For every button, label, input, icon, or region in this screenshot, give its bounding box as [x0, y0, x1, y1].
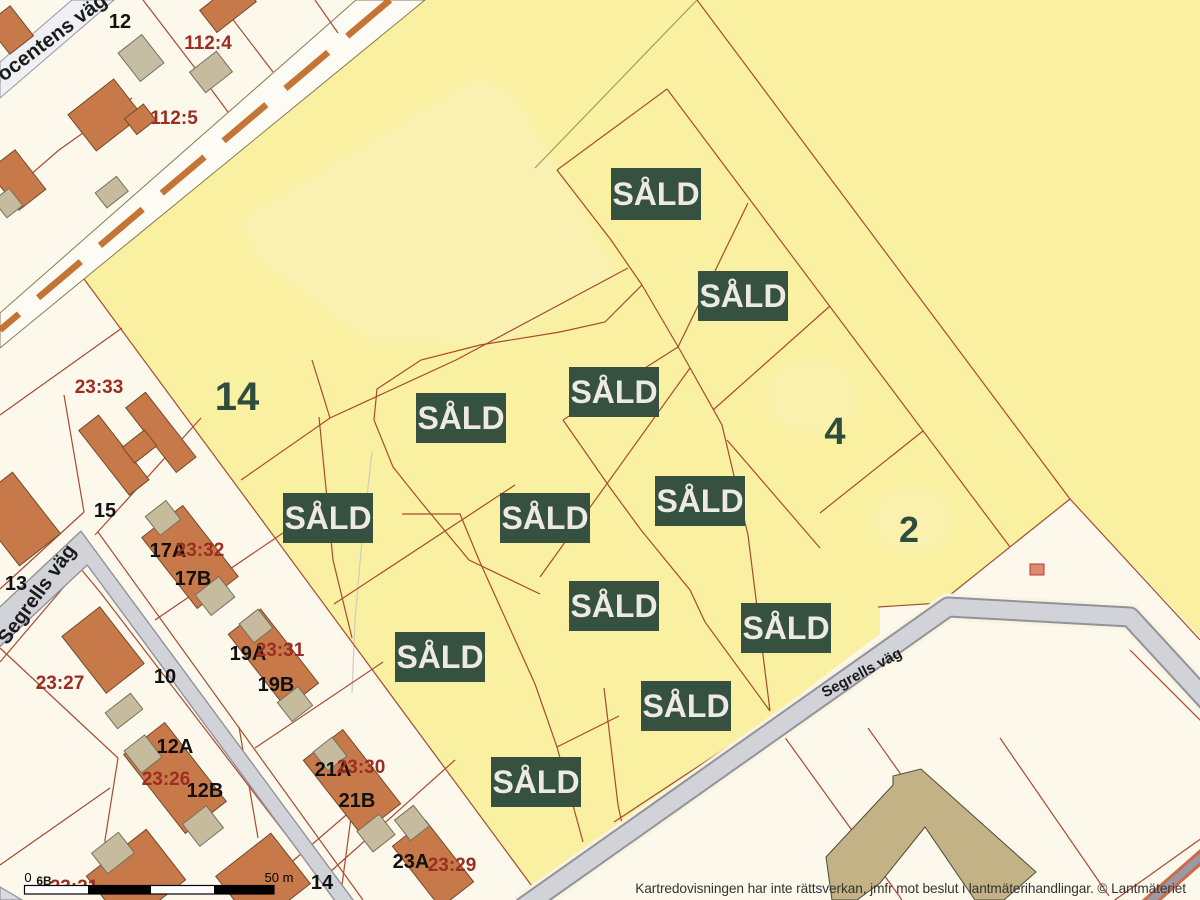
svg-text:14: 14 [311, 872, 334, 894]
svg-text:23:31: 23:31 [256, 640, 305, 661]
svg-text:112:5: 112:5 [150, 108, 198, 129]
svg-text:SÅLD: SÅLD [492, 764, 579, 800]
svg-text:23:32: 23:32 [176, 540, 225, 561]
svg-text:Kartredovisningen har inte rät: Kartredovisningen har inte rättsverkan, … [635, 881, 1186, 896]
svg-text:SÅLD: SÅLD [417, 400, 504, 436]
svg-text:10: 10 [154, 666, 176, 688]
svg-text:SÅLD: SÅLD [284, 500, 371, 536]
svg-text:112:4: 112:4 [184, 33, 232, 54]
svg-text:23:30: 23:30 [337, 757, 386, 778]
svg-text:SÅLD: SÅLD [742, 610, 829, 646]
svg-text:13: 13 [5, 573, 27, 595]
svg-text:12: 12 [109, 11, 131, 33]
svg-text:SÅLD: SÅLD [501, 500, 588, 536]
svg-text:SÅLD: SÅLD [642, 688, 729, 724]
svg-text:12A: 12A [157, 736, 194, 758]
svg-text:SÅLD: SÅLD [656, 483, 743, 519]
svg-text:SÅLD: SÅLD [570, 588, 657, 624]
svg-text:0: 0 [24, 870, 31, 885]
svg-text:SÅLD: SÅLD [612, 176, 699, 212]
svg-text:23A: 23A [393, 851, 430, 873]
svg-text:12B: 12B [187, 780, 224, 802]
svg-text:SÅLD: SÅLD [699, 278, 786, 314]
svg-text:15: 15 [94, 500, 116, 522]
svg-text:14: 14 [215, 375, 260, 419]
svg-text:23:29: 23:29 [428, 855, 477, 876]
svg-text:23:33: 23:33 [75, 377, 124, 398]
svg-text:50 m: 50 m [265, 870, 294, 885]
svg-text:SÅLD: SÅLD [570, 374, 657, 410]
svg-text:19B: 19B [258, 674, 295, 696]
svg-text:2: 2 [899, 509, 919, 550]
svg-text:23:26: 23:26 [142, 769, 191, 790]
svg-text:17B: 17B [175, 568, 212, 590]
svg-text:23:27: 23:27 [36, 673, 85, 694]
svg-text:SÅLD: SÅLD [396, 639, 483, 675]
svg-text:4: 4 [824, 411, 845, 453]
svg-text:21B: 21B [339, 790, 376, 812]
